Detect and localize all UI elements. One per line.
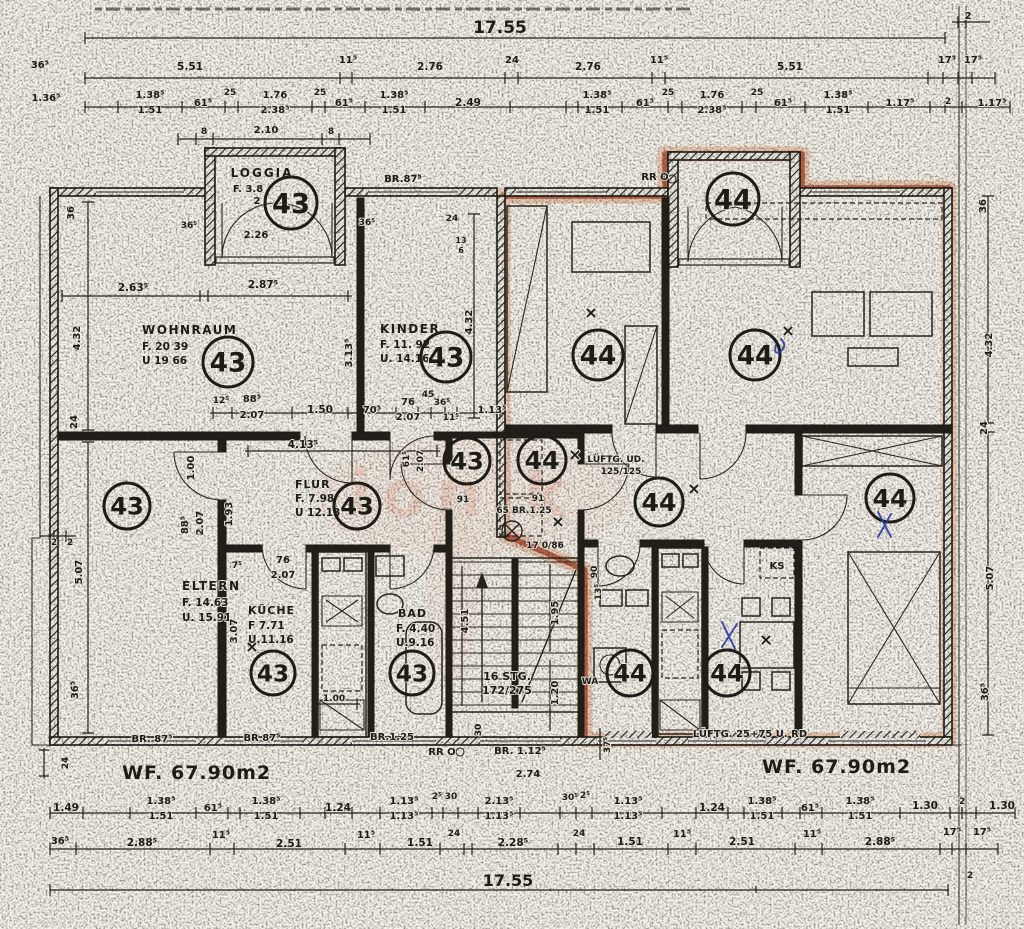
dim: 5.51 xyxy=(777,61,803,73)
x-mark: × xyxy=(245,637,258,656)
dim: 2.74 xyxy=(516,769,541,780)
dim: 1.30 xyxy=(912,800,938,812)
dim: 1.38⁵ xyxy=(379,90,408,101)
unit-number: 43 xyxy=(257,661,289,687)
annotation-lueftung: LÜFTG. UD. xyxy=(587,454,644,465)
room-label-eltern-43: ELTERN xyxy=(182,579,241,593)
annotation-lueftung-44: LÜFTG. 25+75 U. RD xyxy=(693,726,807,740)
dim: 3.13⁵ xyxy=(344,338,355,367)
annotation-rr: RR O xyxy=(641,172,668,183)
dim: 1.13⁵ xyxy=(484,811,513,822)
dim: 1.00 xyxy=(186,456,197,481)
dim: 2.07 xyxy=(271,570,296,581)
dim: 2.51 xyxy=(276,838,302,850)
dim: 1.38⁵ xyxy=(747,796,776,807)
loggia-sill xyxy=(216,257,334,263)
annotation-br: BR. 87⁵ xyxy=(131,734,172,745)
room-area-f: F. 14.63 xyxy=(182,597,229,609)
stair-label: 16 STG. xyxy=(483,670,531,683)
x-mark: × xyxy=(759,630,772,649)
dim: 2.63⁵ xyxy=(118,282,149,294)
room-label-flur-43: FLUR xyxy=(295,478,331,491)
room-label-wohnraum-43: WOHNRAUM xyxy=(142,323,237,337)
room-area-f: F 7.71 xyxy=(248,620,285,632)
dim: 1.76 xyxy=(263,90,288,101)
dim: 8 xyxy=(201,127,207,137)
dim: 24 xyxy=(573,829,586,839)
dim: 2.28⁵ xyxy=(498,837,529,849)
annotation-br: BR. 1.12⁵ xyxy=(494,746,546,757)
dim-total-top: 17.55 xyxy=(473,18,527,38)
annotation-lueftung2: 125/125 xyxy=(601,467,642,477)
dim: 1.93 xyxy=(224,502,235,527)
dim: 1.24 xyxy=(699,802,725,814)
dim: 25 xyxy=(314,88,327,98)
dim: 1.30 xyxy=(989,800,1015,812)
dim: 1.51 xyxy=(826,105,851,116)
dim: 4.32 xyxy=(984,333,995,358)
dim: 61⁵ xyxy=(335,98,353,109)
dim: 2.76 xyxy=(575,61,601,73)
dim: 4.32 xyxy=(72,326,83,351)
dim: 5.07 xyxy=(985,566,996,591)
dim: 1.50 xyxy=(307,404,333,416)
dim: 2 xyxy=(959,797,965,807)
dim: 24 xyxy=(69,415,80,429)
dim: 13 xyxy=(455,236,466,245)
dim: 2.13⁵ xyxy=(484,796,513,807)
dim: 90 xyxy=(590,566,600,579)
dim: 2⁵ xyxy=(432,792,442,802)
dim: 24 xyxy=(505,55,519,66)
dim: 30⁵ xyxy=(562,793,579,803)
room-area-u: U. 15.91 xyxy=(182,612,231,624)
annotation-br: BR 87⁵ xyxy=(243,733,280,744)
dim: 13⁵ xyxy=(594,584,604,601)
x-mark: × xyxy=(551,512,564,531)
dim: 61⁵ xyxy=(801,803,819,814)
floor-plan-drawing: ion k xyxy=(0,0,1024,929)
dim: 36⁵ xyxy=(181,221,198,231)
dim: 1.38⁵ xyxy=(582,90,611,101)
dim: 11⁵ xyxy=(803,829,821,840)
dim: 1.00 xyxy=(323,694,345,704)
dim: 2.38⁵ xyxy=(260,105,289,116)
dim: 11⁵ xyxy=(357,830,375,841)
unit-number: 43 xyxy=(396,661,428,687)
dim: 2.76 xyxy=(417,61,443,73)
annotation-br: 65 BR.1.25 xyxy=(496,506,551,516)
dim: 76 xyxy=(401,397,415,408)
dim: 2.49 xyxy=(455,97,481,109)
dim: 17⁵ xyxy=(973,827,991,838)
dim: 1.95 xyxy=(550,601,561,626)
dim: 17⁵ xyxy=(938,55,956,66)
dim: 1.38⁵ xyxy=(823,90,852,101)
room-area-u: U.9.16 xyxy=(396,637,434,649)
dim: 1.51 xyxy=(254,811,279,822)
annotation: 17 0/86 xyxy=(526,541,564,551)
radiator xyxy=(840,731,920,738)
unit-number: 43 xyxy=(340,493,374,521)
dim: 61⁵ xyxy=(194,98,212,109)
dim: 36⁵ xyxy=(70,681,81,699)
room-area-loggia-43b: 2 xyxy=(254,196,261,207)
dim: 2.10 xyxy=(254,125,279,136)
stair-label2: 172/275 xyxy=(482,684,532,697)
dim: 24 xyxy=(61,757,71,770)
dim: 2.07 xyxy=(416,450,426,472)
dim: 2.88⁵ xyxy=(865,836,896,848)
dim: 91 xyxy=(532,494,545,504)
dim: 4.32 xyxy=(464,310,475,335)
unit-number: 44 xyxy=(524,446,559,475)
dim: 61⁵ xyxy=(774,98,792,109)
dim: 2.07 xyxy=(195,511,206,536)
annotation-br: BR.87⁵ xyxy=(384,174,422,185)
dim: 11⁵ xyxy=(443,413,460,423)
unit-number: 43 xyxy=(110,493,144,521)
dim: 1.13⁵ xyxy=(613,796,642,807)
dim: 61⁵ xyxy=(402,451,412,468)
dim: 36⁵ xyxy=(980,683,991,701)
dim: 4.51 xyxy=(460,609,471,634)
unit-number: 44 xyxy=(872,484,907,513)
dim: 88⁵ xyxy=(180,516,191,534)
unit-number: 43 xyxy=(450,448,484,476)
dim: 37⁵ xyxy=(603,737,613,754)
dim: 1.20 xyxy=(550,681,561,706)
dim: 36⁵ xyxy=(359,218,376,228)
room-label-kinder-43: KINDER xyxy=(380,322,440,336)
dim: 1.24 xyxy=(325,802,351,814)
room-area-f: F. 20 39 xyxy=(142,341,188,353)
annotation-ks: KS xyxy=(770,561,785,572)
dim: 70⁵ xyxy=(363,405,381,416)
dim: 1.49 xyxy=(53,802,79,814)
dim: 2.07 xyxy=(396,412,421,423)
dim: 1.51 xyxy=(848,811,873,822)
room-label-kueche-43: KÜCHE xyxy=(248,603,295,617)
dim: 11⁵ xyxy=(339,55,357,66)
window xyxy=(516,189,606,195)
dim: 1.51 xyxy=(750,811,775,822)
x-mark: × xyxy=(687,479,700,498)
scanned-floor-plan-page: ion k xyxy=(0,0,1024,929)
dim: 5.51 xyxy=(177,61,203,73)
dim: 2.87⁵ xyxy=(248,279,279,291)
dim: 2.26 xyxy=(244,230,269,241)
window xyxy=(828,738,926,744)
annotation-rr: RR O xyxy=(428,747,455,758)
window xyxy=(812,189,900,195)
dim: 1.76 xyxy=(700,90,725,101)
dim: 11⁵ xyxy=(212,830,230,841)
window xyxy=(96,189,184,195)
dim: 24 xyxy=(446,214,459,224)
dim: 8 xyxy=(328,127,334,137)
unit-number: 43 xyxy=(210,349,247,379)
x-mark: × xyxy=(568,445,581,464)
annotation-wa: WA xyxy=(582,677,599,687)
dim: 76 xyxy=(276,555,290,566)
room-area-f: F. 4.40 xyxy=(396,623,435,635)
dim: 1.13⁵ xyxy=(389,811,418,822)
unit-number: 44 xyxy=(641,488,676,517)
dim: 25 xyxy=(751,88,764,98)
window xyxy=(480,738,560,744)
area-label-44: WF. 67.90m2 xyxy=(762,756,911,778)
room-label-bad-43: BAD xyxy=(398,607,427,620)
dim: 2.38⁵ xyxy=(697,105,726,116)
dim: 1.13⁵ xyxy=(389,796,418,807)
dim: 7⁵ xyxy=(232,561,242,571)
unit-number: 43 xyxy=(428,344,465,374)
dim: 2 xyxy=(51,538,57,548)
dim: 1.51 xyxy=(149,811,174,822)
dim: 17⁵ xyxy=(964,55,982,66)
window xyxy=(368,189,458,195)
dim: 30 xyxy=(474,724,484,737)
dim: 1.51 xyxy=(617,836,643,848)
dim: 25 xyxy=(224,88,237,98)
annotation-br: BR.1.25 xyxy=(370,732,414,743)
dim: 36⁵ xyxy=(51,836,69,847)
dim: 2.88⁵ xyxy=(127,837,158,849)
dim: 2 xyxy=(67,538,73,548)
dim: 1.38⁵ xyxy=(251,796,280,807)
dim: 1.36⁵ xyxy=(31,93,60,104)
dim: 61⁵ xyxy=(636,98,654,109)
dim: 2.51 xyxy=(729,836,755,848)
x-mark: × xyxy=(584,303,597,322)
dim: 36⁵ xyxy=(434,398,451,408)
dim: 1.17⁵ xyxy=(977,98,1006,109)
dim: 1.13⁵ xyxy=(613,811,642,822)
dim: 1.38⁵ xyxy=(845,796,874,807)
x-mark: × xyxy=(781,321,794,340)
unit-number: 44 xyxy=(737,342,774,372)
room-area-loggia-43: F. 3.8 xyxy=(233,184,263,195)
unit-number: 43 xyxy=(272,189,310,220)
dim: 17⁵ xyxy=(943,827,961,838)
room-area-u: U 19 66 xyxy=(142,355,187,367)
unit-number: 44 xyxy=(613,660,647,688)
dim: 36 xyxy=(978,199,989,213)
area-label-43: WF. 67.90m2 xyxy=(122,762,271,784)
dim: 11⁵ xyxy=(673,829,691,840)
dim: 1.51 xyxy=(585,105,610,116)
dim: 25 xyxy=(662,88,675,98)
room-area-f: F. 7.98 xyxy=(295,493,334,505)
dim: 1.51 xyxy=(382,105,407,116)
dim: 2⁵ xyxy=(580,791,590,801)
dim: 2 xyxy=(965,11,972,22)
dim: 61⁵ xyxy=(204,803,222,814)
dim: 1.51 xyxy=(407,837,433,849)
dim: 12⁵ xyxy=(213,396,230,406)
dim: 3.07 xyxy=(229,619,240,644)
unit-number: 44 xyxy=(714,185,752,216)
unit-number: 44 xyxy=(710,660,744,688)
dim: 36⁵ xyxy=(31,60,49,71)
dim: 2 xyxy=(967,871,973,881)
dim: 91 xyxy=(457,495,470,505)
dim: 1.13⁵ xyxy=(477,405,506,416)
dim: 30 xyxy=(445,792,458,802)
dim: 88⁵ xyxy=(243,394,261,405)
dim: 4.13⁵ xyxy=(288,439,319,451)
dim: 45 xyxy=(422,390,435,400)
dim: 6 xyxy=(458,246,464,255)
dim: 2.07 xyxy=(240,410,265,421)
dim: 11⁵ xyxy=(650,55,668,66)
dim: 2 xyxy=(945,97,951,107)
dim: 1.51 xyxy=(138,105,163,116)
dim: 5.07 xyxy=(74,560,85,585)
dim: 36 xyxy=(66,206,77,220)
dim: 24 xyxy=(448,829,461,839)
unit-number: 44 xyxy=(580,342,617,372)
loggia-sill xyxy=(679,259,789,265)
dim-total-bottom: 17.55 xyxy=(483,871,534,890)
dim: 1.17⁵ xyxy=(885,98,914,109)
dim: 24 xyxy=(979,421,990,435)
dim: 1.38⁵ xyxy=(135,90,164,101)
dim: 1.38⁵ xyxy=(146,796,175,807)
